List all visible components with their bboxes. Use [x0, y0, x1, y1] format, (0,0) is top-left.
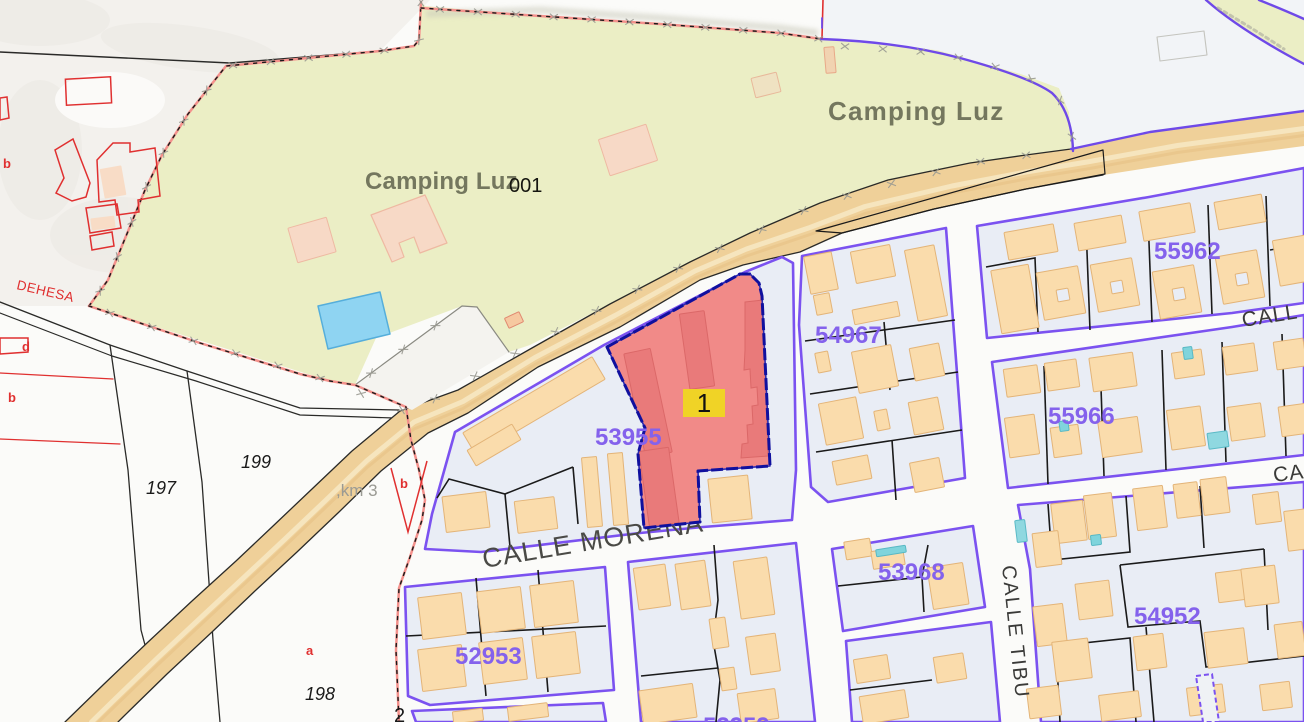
svg-text:54952: 54952 — [1134, 603, 1201, 630]
svg-text:,km 3: ,km 3 — [336, 481, 378, 500]
svg-text:53968: 53968 — [878, 559, 945, 586]
svg-text:52953: 52953 — [455, 643, 522, 670]
svg-text:53955: 53955 — [595, 424, 662, 451]
svg-text:CA: CA — [1272, 460, 1304, 487]
svg-text:55962: 55962 — [1154, 238, 1221, 265]
svg-text:55966: 55966 — [1048, 403, 1115, 430]
svg-text:1: 1 — [697, 388, 711, 418]
svg-text:199: 199 — [241, 452, 271, 472]
svg-text:Camping Luz: Camping Luz — [828, 96, 1004, 126]
svg-text:53959: 53959 — [703, 713, 770, 722]
svg-text:b: b — [3, 156, 11, 171]
svg-text:197: 197 — [146, 478, 177, 498]
svg-text:2: 2 — [394, 705, 405, 722]
svg-text:b: b — [400, 476, 408, 491]
svg-text:d: d — [22, 339, 30, 354]
svg-text:001: 001 — [509, 175, 542, 197]
svg-text:54967: 54967 — [815, 322, 882, 349]
svg-text:b: b — [8, 390, 16, 405]
svg-text:198: 198 — [305, 684, 335, 704]
svg-text:a: a — [306, 643, 314, 658]
svg-text:Camping Luz: Camping Luz — [365, 168, 518, 195]
